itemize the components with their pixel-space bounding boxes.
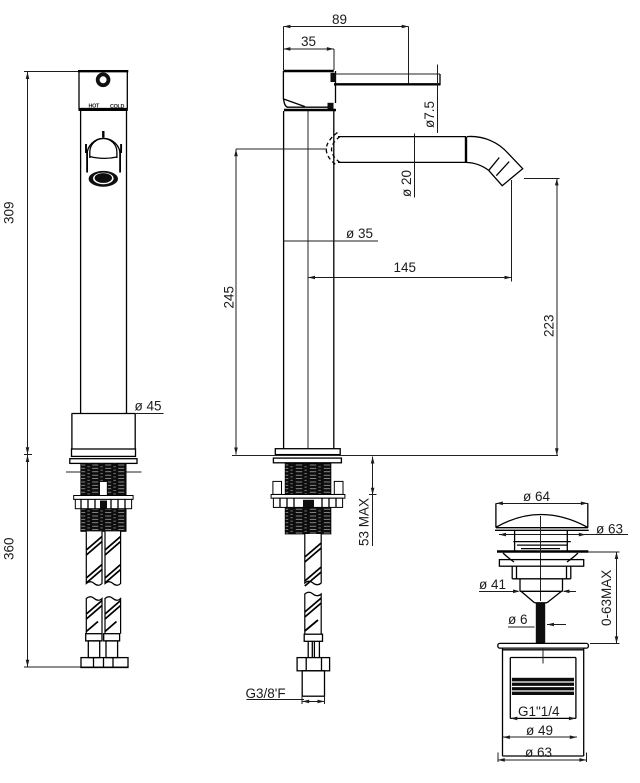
svg-text:ø 63: ø 63 <box>596 522 623 537</box>
svg-text:ø 6: ø 6 <box>508 612 528 627</box>
svg-text:223: 223 <box>542 314 557 337</box>
svg-text:53 MAX: 53 MAX <box>357 498 372 546</box>
svg-text:145: 145 <box>394 260 417 275</box>
svg-text:ø 64: ø 64 <box>523 489 551 504</box>
svg-text:0-63MAX: 0-63MAX <box>599 570 614 626</box>
svg-text:89: 89 <box>332 12 347 27</box>
svg-text:ø 45: ø 45 <box>135 399 162 414</box>
svg-text:309: 309 <box>2 201 17 224</box>
svg-text:ø 20: ø 20 <box>399 170 414 197</box>
svg-text:ø 49: ø 49 <box>526 723 553 738</box>
svg-text:G1"1/4: G1"1/4 <box>518 704 560 719</box>
svg-text:245: 245 <box>222 286 237 309</box>
svg-text:ø7.5: ø7.5 <box>422 101 437 128</box>
svg-text:G3/8'F: G3/8'F <box>246 686 286 701</box>
svg-text:ø 35: ø 35 <box>346 226 373 241</box>
svg-text:360: 360 <box>2 537 17 560</box>
svg-text:35: 35 <box>301 34 316 49</box>
svg-text:ø 63: ø 63 <box>525 745 552 760</box>
svg-text:ø 41: ø 41 <box>479 577 506 592</box>
svg-text:HOT: HOT <box>89 104 100 110</box>
